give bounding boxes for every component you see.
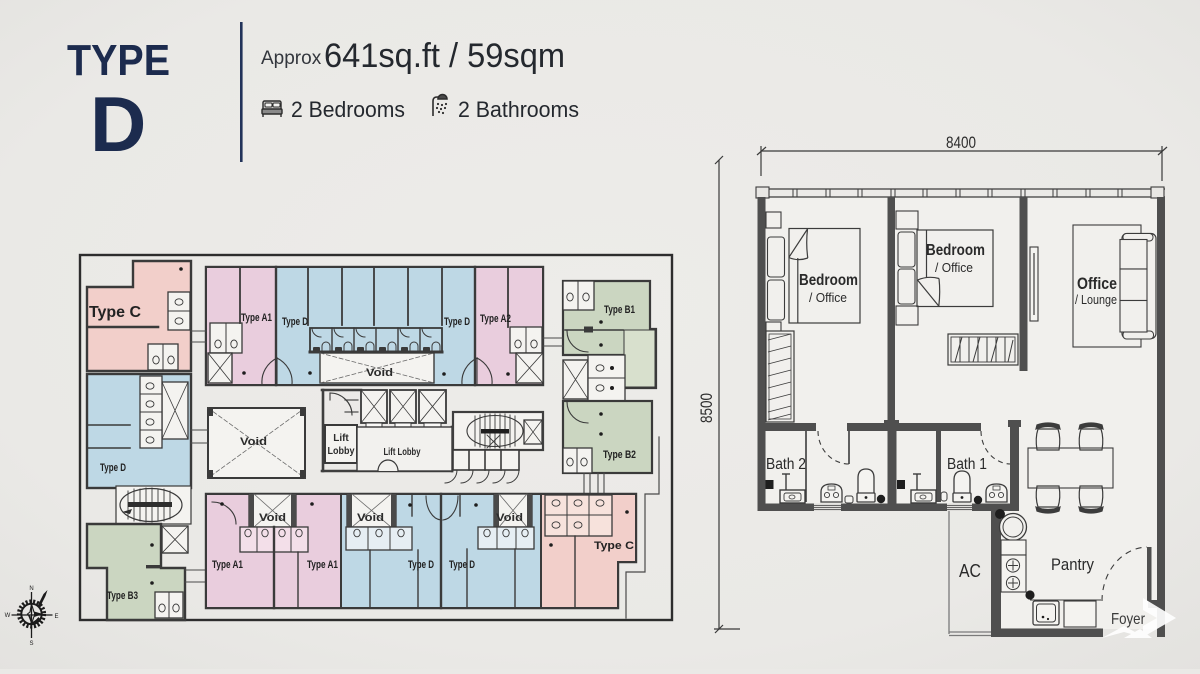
svg-text:Type B1: Type B1 bbox=[604, 304, 635, 316]
svg-text:641sq.ft / 59sqm: 641sq.ft / 59sqm bbox=[324, 37, 565, 75]
svg-text:8500: 8500 bbox=[698, 393, 716, 423]
svg-text:E: E bbox=[54, 614, 58, 620]
svg-text:Type C: Type C bbox=[89, 304, 141, 321]
svg-text:Type A1: Type A1 bbox=[241, 312, 272, 324]
svg-text:Lift: Lift bbox=[333, 433, 349, 444]
svg-text:Type B3: Type B3 bbox=[107, 590, 138, 602]
svg-text:W: W bbox=[5, 613, 11, 619]
svg-text:Type C: Type C bbox=[594, 540, 634, 552]
svg-text:Type D: Type D bbox=[444, 316, 470, 328]
svg-text:Type A2: Type A2 bbox=[480, 313, 511, 325]
svg-text:Bath 2: Bath 2 bbox=[766, 456, 806, 473]
svg-text:Void: Void bbox=[357, 512, 384, 524]
svg-text:Void: Void bbox=[496, 512, 523, 524]
svg-text:Type D: Type D bbox=[100, 462, 126, 474]
svg-text:Office: Office bbox=[1077, 275, 1117, 293]
svg-text:Approx: Approx bbox=[261, 48, 322, 69]
svg-text:Type D: Type D bbox=[282, 316, 308, 328]
svg-text:2 Bedrooms: 2 Bedrooms bbox=[291, 97, 405, 122]
svg-text:N: N bbox=[29, 586, 33, 592]
svg-text:TYPE: TYPE bbox=[67, 37, 170, 85]
svg-text:Void: Void bbox=[259, 512, 286, 524]
svg-text:Type A1: Type A1 bbox=[307, 559, 338, 571]
svg-text:Foyer: Foyer bbox=[1111, 611, 1146, 628]
svg-text:Bedroom: Bedroom bbox=[926, 242, 985, 259]
svg-text:/ Office: / Office bbox=[809, 291, 847, 305]
svg-text:Lift Lobby: Lift Lobby bbox=[384, 446, 421, 458]
svg-text:D: D bbox=[90, 80, 146, 168]
svg-text:S: S bbox=[29, 641, 33, 647]
svg-text:/ Lounge: / Lounge bbox=[1075, 292, 1117, 307]
svg-text:2 Bathrooms: 2 Bathrooms bbox=[458, 97, 579, 122]
svg-text:Bath 1: Bath 1 bbox=[947, 456, 987, 473]
svg-text:Void: Void bbox=[240, 436, 267, 448]
svg-text:Pantry: Pantry bbox=[1051, 555, 1094, 574]
svg-text:8400: 8400 bbox=[946, 134, 976, 152]
svg-text:Void: Void bbox=[366, 367, 393, 379]
svg-text:Bedroom: Bedroom bbox=[799, 272, 858, 289]
svg-text:/ Office: / Office bbox=[935, 261, 973, 275]
svg-text:AC: AC bbox=[959, 561, 981, 581]
svg-text:Type D: Type D bbox=[449, 559, 475, 571]
svg-text:Type B2: Type B2 bbox=[603, 449, 636, 461]
svg-text:Type D: Type D bbox=[408, 559, 434, 571]
svg-text:Lobby: Lobby bbox=[328, 446, 355, 457]
svg-text:Type A1: Type A1 bbox=[212, 559, 243, 571]
